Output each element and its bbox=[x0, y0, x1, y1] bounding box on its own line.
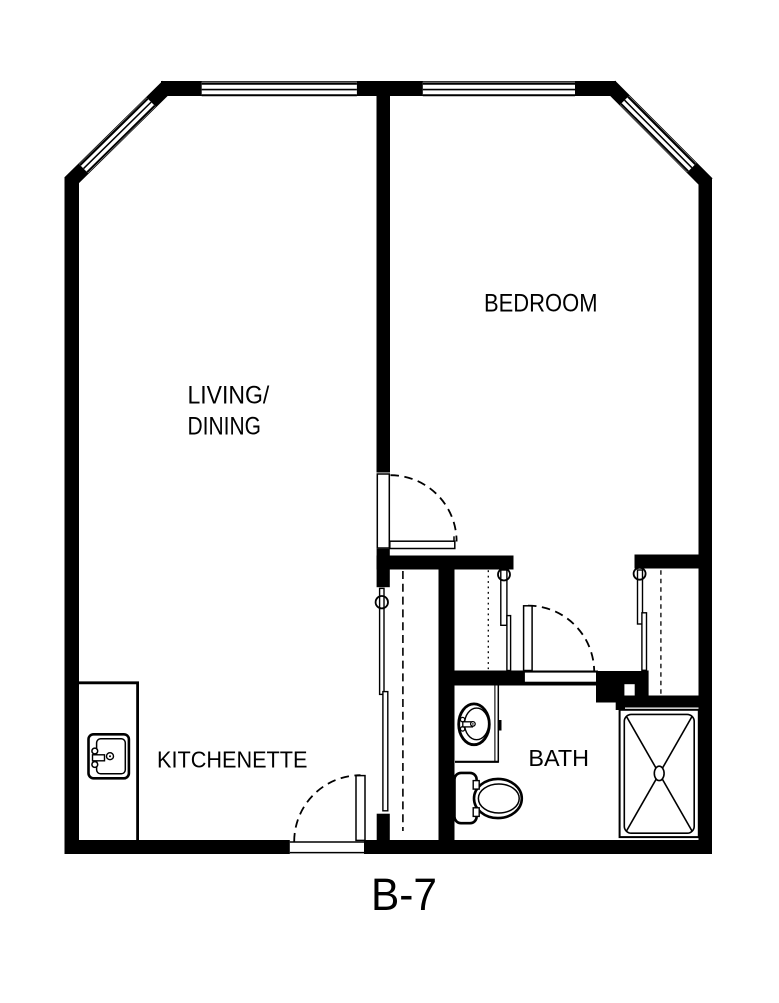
svg-text:B-7: B-7 bbox=[371, 869, 437, 920]
svg-text:KITCHENETTE: KITCHENETTE bbox=[157, 747, 308, 773]
svg-text:LIVING/: LIVING/ bbox=[188, 382, 270, 410]
svg-text:DINING: DINING bbox=[188, 412, 262, 440]
svg-text:BEDROOM: BEDROOM bbox=[484, 290, 598, 318]
svg-text:BATH: BATH bbox=[528, 745, 589, 771]
